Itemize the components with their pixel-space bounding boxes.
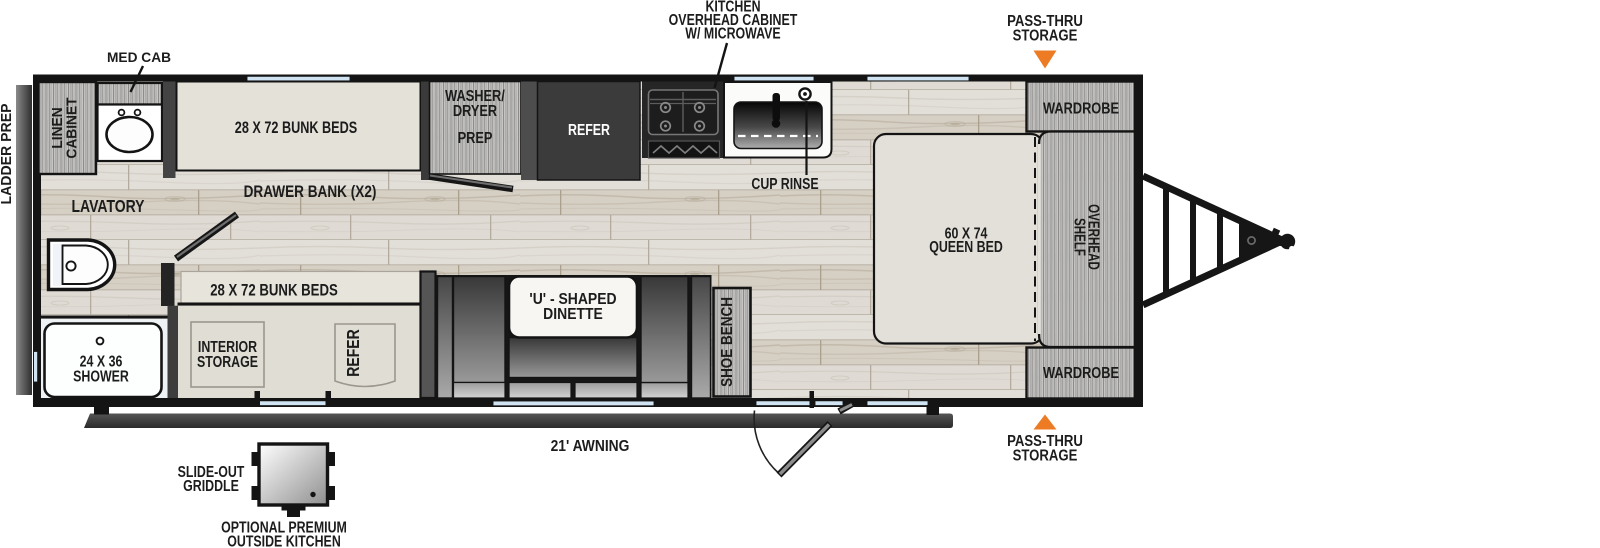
svg-text:OPTIONAL PREMIUMOUTSIDE KITCHE: OPTIONAL PREMIUMOUTSIDE KITCHEN bbox=[221, 518, 347, 548]
svg-text:WARDROBE: WARDROBE bbox=[1043, 365, 1119, 383]
svg-text:MED CAB: MED CAB bbox=[107, 49, 171, 65]
svg-text:SLIDE-OUTGRIDDLE: SLIDE-OUTGRIDDLE bbox=[178, 463, 245, 495]
svg-text:28 X 72 BUNK BEDS: 28 X 72 BUNK BEDS bbox=[235, 118, 357, 137]
svg-text:WARDROBE: WARDROBE bbox=[1043, 100, 1119, 118]
svg-text:LADDER PREP: LADDER PREP bbox=[0, 103, 15, 204]
svg-text:INTERIORSTORAGE: INTERIORSTORAGE bbox=[197, 338, 258, 371]
svg-text:SHOE BENCH: SHOE BENCH bbox=[719, 297, 736, 387]
svg-text:28 X 72 BUNK BEDS: 28 X 72 BUNK BEDS bbox=[210, 281, 338, 300]
svg-text:REFER: REFER bbox=[568, 121, 610, 139]
svg-text:24 X 36SHOWER: 24 X 36SHOWER bbox=[73, 352, 129, 385]
svg-text:LAVATORY: LAVATORY bbox=[71, 198, 144, 217]
svg-text:DRAWER BANK (X2): DRAWER BANK (X2) bbox=[244, 183, 377, 202]
svg-text:PASS-THRUSTORAGE: PASS-THRUSTORAGE bbox=[1007, 433, 1083, 465]
svg-text:PASS-THRUSTORAGE: PASS-THRUSTORAGE bbox=[1007, 13, 1083, 45]
svg-text:REFER: REFER bbox=[345, 329, 364, 377]
svg-text:CUP RINSE: CUP RINSE bbox=[751, 175, 818, 193]
svg-text:21' AWNING: 21' AWNING bbox=[551, 437, 630, 455]
